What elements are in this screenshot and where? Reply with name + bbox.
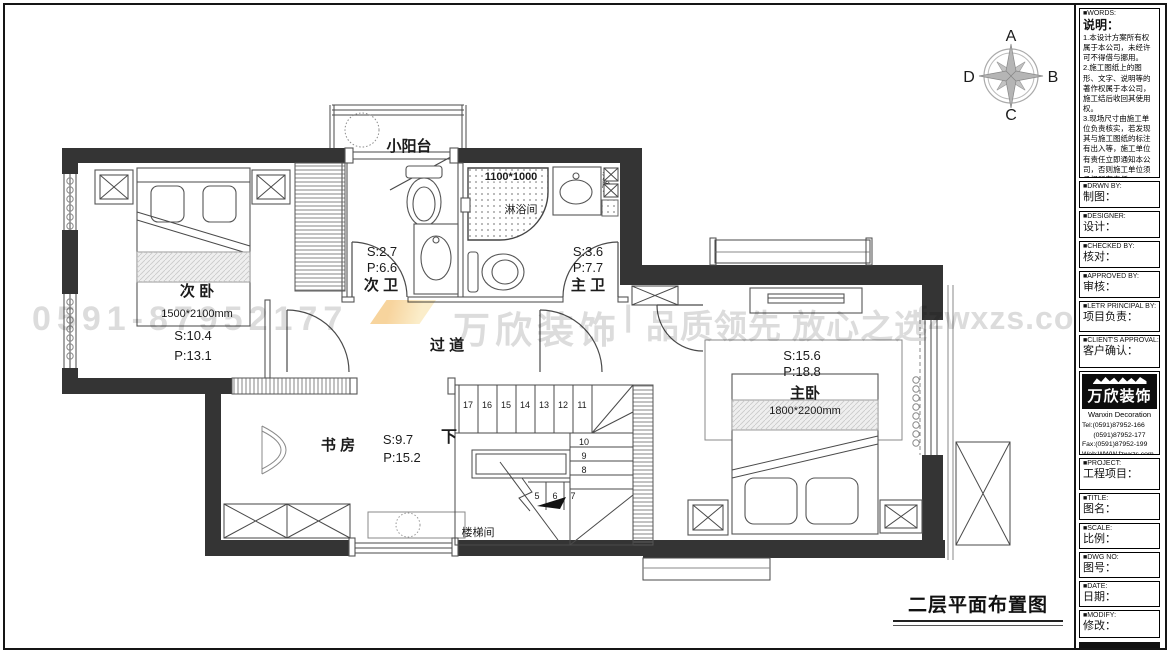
- stairwell: 17 16 15 14 13 12 11 10 9 8 5 6 7 下 楼梯间: [441, 385, 633, 545]
- door-arc: [657, 305, 703, 351]
- master-bedroom-area: S:15.6: [783, 348, 821, 363]
- logo-text: 万欣装饰: [1082, 385, 1157, 406]
- secondary-bath: S:2.7 P:6.6 次 卫: [352, 166, 458, 297]
- compass-e-label: B: [1048, 69, 1059, 86]
- corridor-label: 过 道: [430, 336, 464, 354]
- step-number: 6: [552, 491, 557, 501]
- secondary-bedroom-perimeter: P:13.1: [174, 348, 212, 363]
- door-arc: [540, 310, 602, 372]
- secondary-bedroom-bed-size: 1500*2100mm: [161, 308, 233, 320]
- field-client-approval: ■CLIENT'S APPROVAL: 客户确认：: [1079, 335, 1160, 368]
- notes-body: 1.本设计方案所有权属于本公司，未经许可不得借与挪用。 2.施工图纸上的图形、文…: [1083, 33, 1156, 178]
- toilet-tank: [468, 252, 478, 292]
- master-bedroom-perimeter: P:18.8: [783, 364, 821, 379]
- balcony: 小阳台: [330, 105, 466, 190]
- window-hatch: [232, 378, 352, 394]
- pillow: [806, 478, 858, 524]
- step-number: 11: [577, 400, 586, 410]
- master-bath-area: S:3.6: [573, 244, 603, 259]
- study-area: S:9.7: [383, 432, 413, 447]
- step-number: 16: [482, 400, 492, 410]
- step-number: 15: [501, 400, 511, 410]
- compass-rose: A B C D: [963, 28, 1058, 124]
- step-number: 8: [581, 465, 586, 475]
- pillow: [151, 186, 184, 222]
- secondary-bedroom-label: 次 卧: [180, 282, 214, 300]
- secondary-bath-label: 次 卫: [364, 276, 398, 294]
- field-scale: ■SCALE: 比例：: [1079, 523, 1160, 549]
- secondary-bath-area: S:2.7: [367, 244, 397, 259]
- step-number: 17: [463, 400, 473, 410]
- field-principal: ■LETR PRINCIPAL BY: 项目负责：: [1079, 301, 1160, 332]
- drawing-caption-text: 二层平面布置图: [893, 590, 1063, 622]
- study: 书 房 S:9.7 P:15.2: [224, 426, 421, 538]
- corridor: 过 道: [287, 310, 602, 372]
- step-number: 9: [581, 451, 586, 461]
- curtain-coil-icon: [913, 377, 919, 446]
- step-number: 7: [570, 491, 575, 501]
- step-number: 14: [520, 400, 530, 410]
- toilet-tank: [406, 166, 442, 178]
- master-bedroom: S:15.6 P:18.8 主卧 1800*2200mm: [632, 286, 922, 535]
- step-number: 12: [558, 400, 568, 410]
- master-bedroom-label: 主卧: [790, 384, 820, 402]
- wardrobe-hatch: [295, 163, 345, 291]
- compass-s-label: C: [1005, 107, 1017, 124]
- stairwell-label: 楼梯间: [462, 525, 495, 539]
- logo-swoosh-icon: [1093, 377, 1147, 384]
- field-drawn-by: ■DRWN BY: 制图：: [1079, 181, 1160, 208]
- secondary-bedroom: 次 卧 1500*2100mm S:10.4 P:13.1: [95, 163, 345, 363]
- study-label: 书 房: [321, 436, 355, 454]
- shower-room: 1100*1000 淋浴间: [461, 168, 548, 240]
- notes-section: ■WORDS: 说明： 1.本设计方案所有权属于本公司，未经许可不得借与挪用。 …: [1079, 8, 1160, 178]
- master-bath-label: 主 卫: [571, 276, 605, 294]
- shower-size: 1100*1000: [485, 171, 538, 183]
- secondary-bath-perimeter: P:6.6: [367, 260, 397, 275]
- balcony-label: 小阳台: [386, 137, 431, 155]
- field-approved-by: ■APPROVED BY: 审核：: [1079, 271, 1160, 298]
- pillow: [745, 478, 797, 524]
- compass-w-label: D: [963, 69, 975, 86]
- title-block: ■WORDS: 说明： 1.本设计方案所有权属于本公司，未经许可不得借与挪用。 …: [1074, 5, 1162, 648]
- notes-title: 说明：: [1083, 18, 1156, 33]
- field-project: ■PROJECT: 工程项目：: [1079, 458, 1160, 490]
- field-date: ■DATE: 日期：: [1079, 581, 1160, 607]
- company-contacts: Tel:(0591)87952-166 (0591)87952-177 Fax:…: [1082, 421, 1157, 455]
- master-bedroom-bed-size: 1800*2200mm: [769, 405, 841, 417]
- compass-n-label: A: [1006, 28, 1017, 45]
- notes-tag: ■WORDS:: [1083, 10, 1156, 18]
- field-checked-by: ■CHECKED BY: 核对：: [1079, 241, 1160, 268]
- brand-section: 万欣装饰 Wanxin Decoration Tel:(0591)87952-1…: [1079, 371, 1160, 455]
- field-title: ■TITLE: 图名：: [1079, 493, 1160, 520]
- field-modify: ■MODIFY: 修改：: [1079, 610, 1160, 638]
- field-designer: ■DESIGNER: 设计：: [1079, 211, 1160, 238]
- logo-subtitle: Wanxin Decoration: [1082, 410, 1157, 419]
- company-logo: 万欣装饰: [1082, 374, 1157, 409]
- secondary-bedroom-area: S:10.4: [174, 328, 212, 343]
- drawing-sheet: 小阳台: [0, 0, 1170, 653]
- pillow: [203, 186, 236, 222]
- plant-icon: [345, 113, 379, 147]
- shower-label: 淋浴间: [505, 203, 538, 216]
- caption-underline: [893, 625, 1063, 626]
- titleblock-bottom-bar: [1079, 642, 1160, 648]
- floor-plan: 小阳台: [0, 0, 1075, 653]
- stairs-down-label: 下: [441, 429, 457, 446]
- step-number: 10: [579, 437, 589, 447]
- drawing-caption: 二层平面布置图: [893, 590, 1063, 626]
- master-bath-perimeter: P:7.7: [573, 260, 603, 275]
- study-perimeter: P:15.2: [383, 450, 421, 465]
- sink-icon: [560, 180, 592, 204]
- step-number: 13: [539, 400, 549, 410]
- door-arc: [287, 310, 349, 372]
- step-number: 5: [534, 491, 539, 501]
- stair-wall-hatch: [633, 385, 653, 545]
- field-dwg-no: ■DWG NO: 图号：: [1079, 552, 1160, 578]
